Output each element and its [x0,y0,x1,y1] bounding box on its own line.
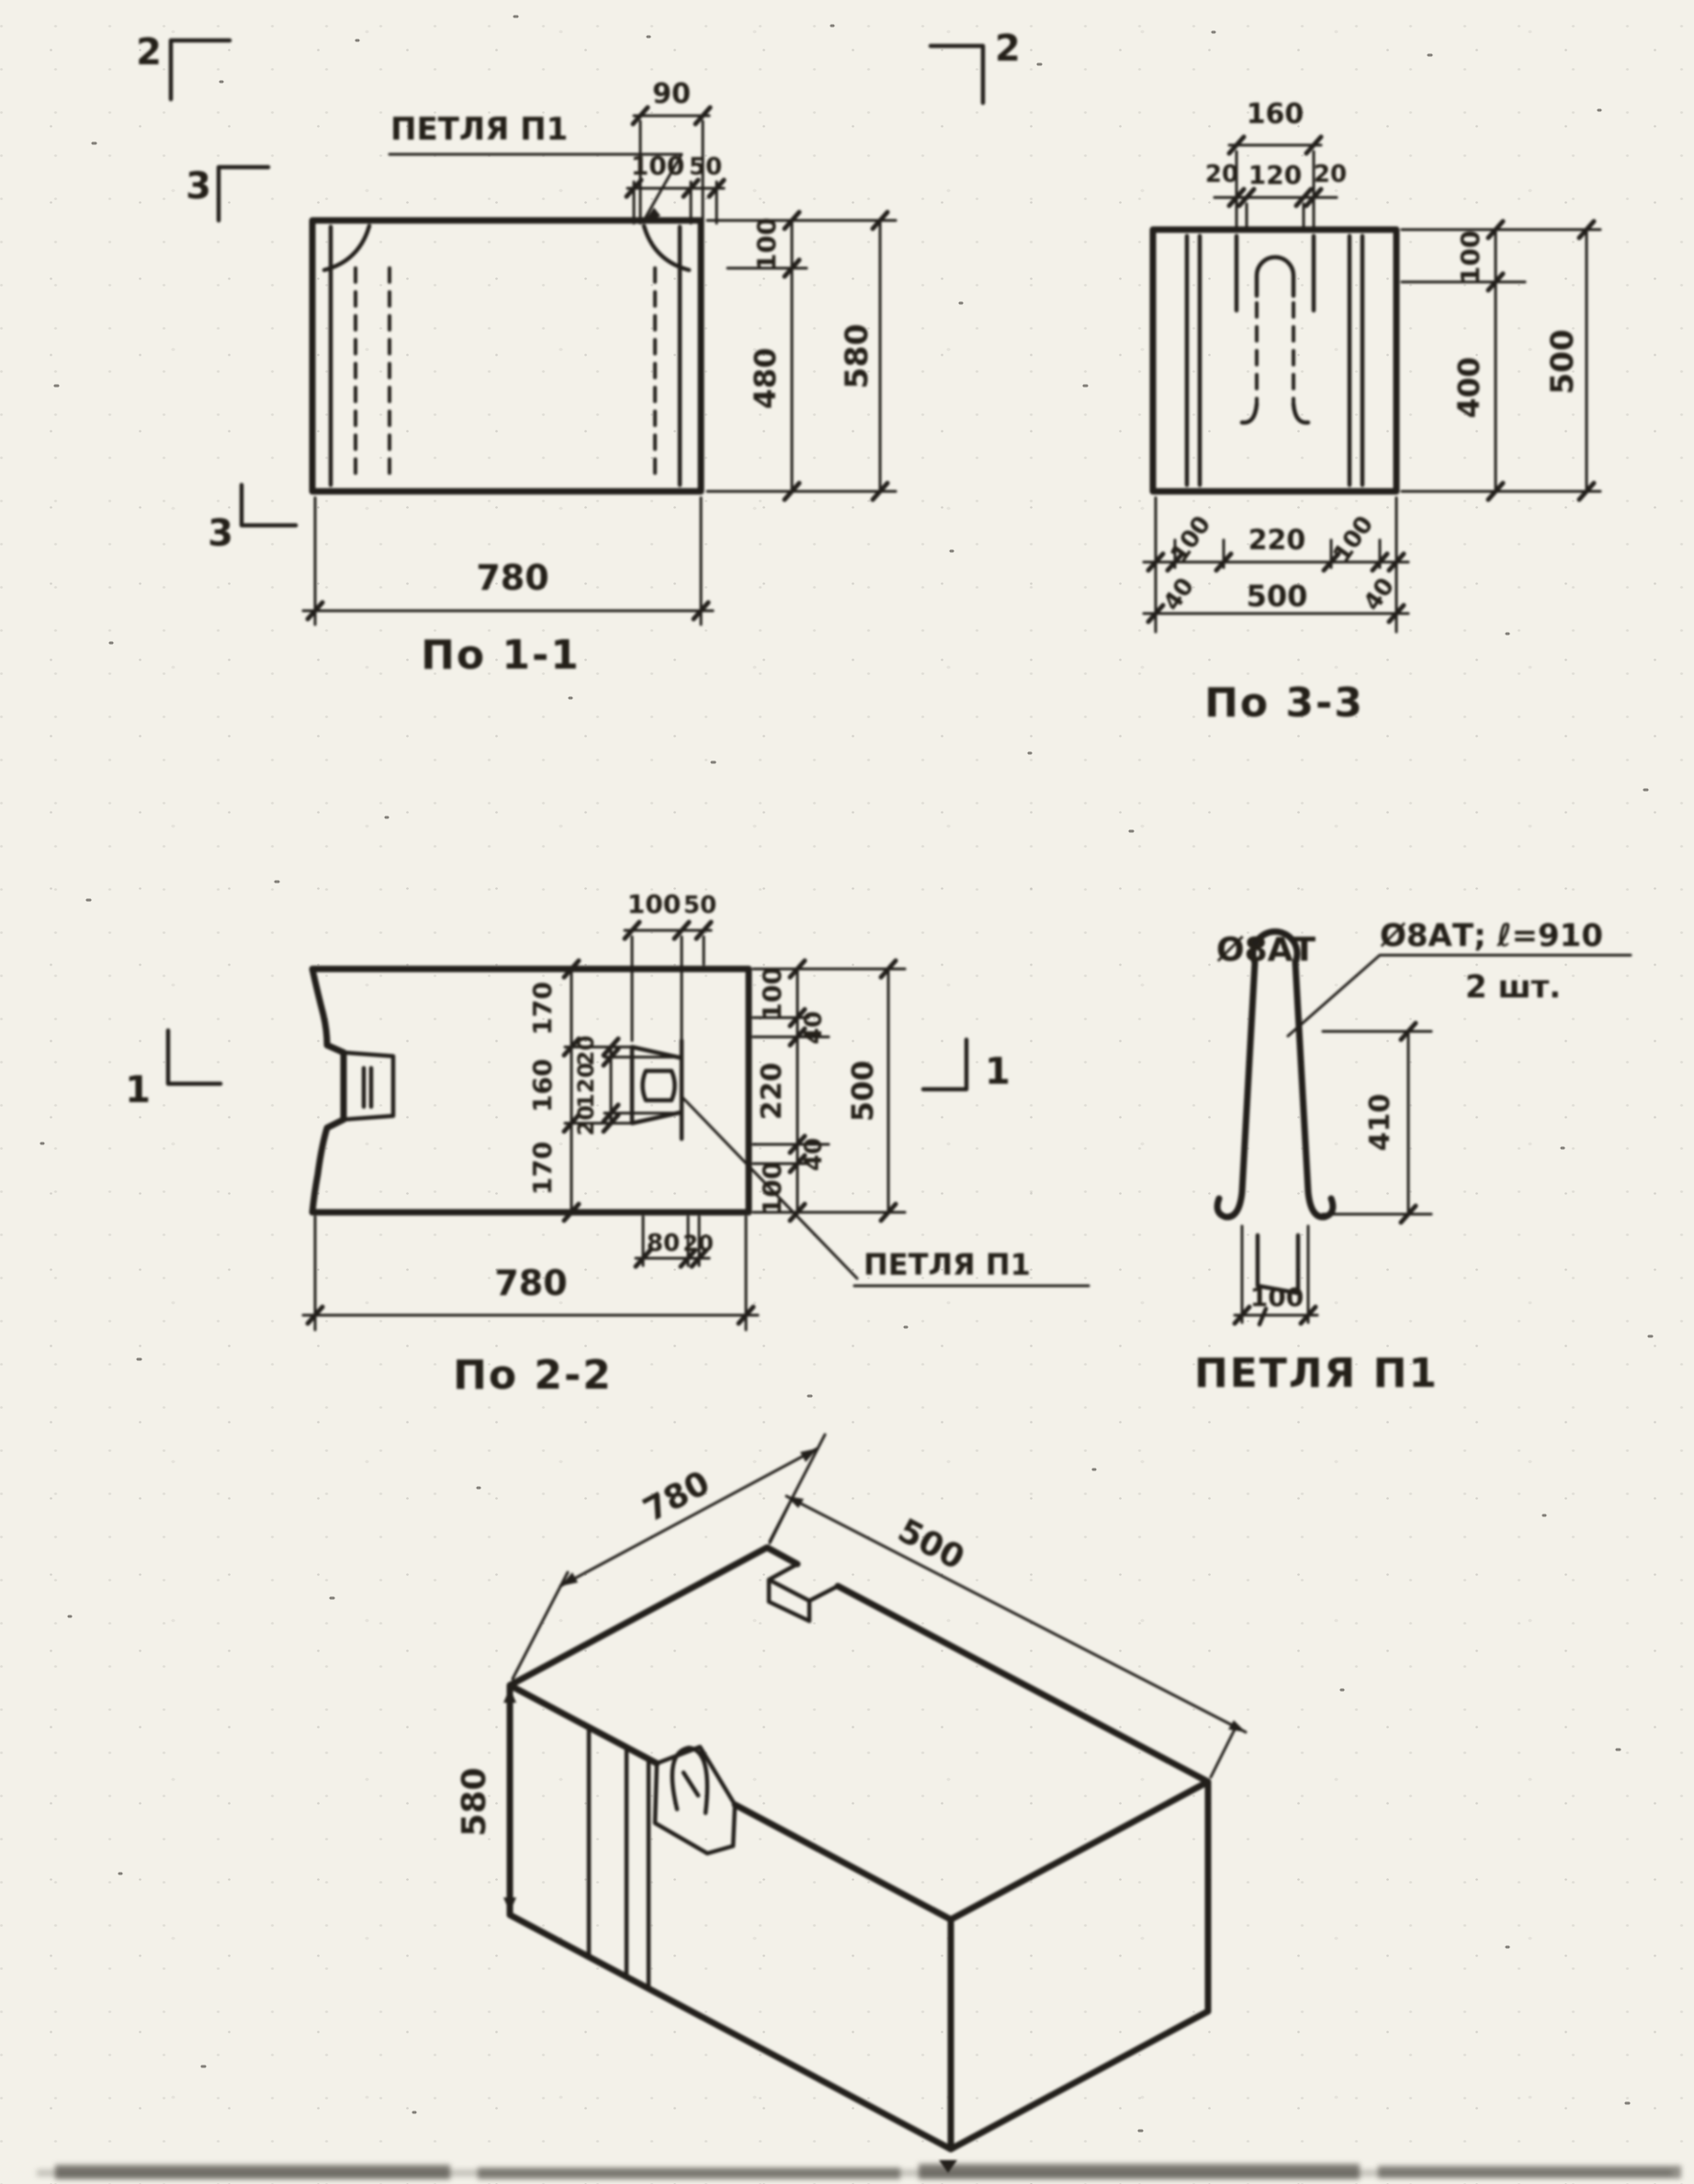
dim-780-2-2: 780 [494,1263,567,1303]
iso-dim-arrowheads [503,1448,1246,1912]
block-outline-3-3 [1153,230,1396,491]
dim-170-a: 170 [527,982,558,1035]
dim-20-bot: 20 [683,1231,713,1256]
section-mark-3-top: 3 [186,165,211,208]
dim-480: 480 [748,348,783,410]
section-mark-3-top-bracket [219,167,268,220]
iso-front-recess [655,1747,735,1853]
section-mark-1-left: 1 [125,1069,151,1111]
iso-dim-500: 500 [892,1512,971,1577]
bottom-smudge-strip [37,2164,1681,2179]
loop-wire [1217,931,1333,1217]
dim-ticks-3-3 [1148,137,1594,622]
smudge-3 [919,2164,1360,2179]
dim-ticks-1-1 [308,107,887,619]
groove-lines-1-1 [324,226,689,485]
smudge-2 [478,2167,900,2179]
iso-dim-580: 580 [456,1767,493,1836]
loop-detail-view: Ø8АТ Ø8АТ; ℓ=910 2 шт. 410 100 ПЕТЛЯ П1 [1194,918,1631,1397]
dim-lines-1-1 [303,116,896,625]
section-mark-2-right: 2 [995,28,1021,70]
loop-wire-3-3 [1242,257,1308,422]
loop-note-leader [1288,955,1631,1036]
dim-500-bottom: 500 [1247,579,1308,614]
dim-20-left: 20 [1205,161,1238,188]
dim-120: 120 [1248,160,1302,190]
dim-50-top: 50 [689,153,722,181]
loop-dim-ticks [1235,1023,1416,1323]
dim-100-top-2-2: 100 [627,889,681,919]
dim-400: 400 [1451,357,1486,419]
blueprint-scan-page: ПЕТЛЯ П1 90 100 50 100 480 580 780 По 1-… [0,0,1694,2184]
dim-40-right: 40 [1359,573,1400,616]
section-mark-3-bottom: 3 [208,512,233,555]
dim-lines-3-3 [1144,145,1600,632]
dim-100-loop: 100 [1250,1282,1304,1312]
dim-100-right-a: 100 [757,967,787,1020]
dim-ticks-2-2 [308,922,896,1323]
dim-100-top: 100 [631,151,684,181]
section-1-1-view: ПЕТЛЯ П1 90 100 50 100 480 580 780 По 1-… [136,28,1021,679]
isometric-view: 780 500 580 [456,1435,1246,2173]
dim-780-bottom: 780 [476,557,548,598]
section-2-2-view: 100 50 170 160 170 20 120 20 100 40 220 … [125,889,1089,1399]
iso-front-grooves [589,1728,649,1987]
iso-notch [769,1564,838,1621]
dim-580: 580 [839,324,875,389]
dim-100-right-b: 100 [757,1162,787,1215]
section-mark-2-right-bracket [931,46,983,103]
dim-40-left: 40 [1158,573,1200,616]
dim-20-right: 20 [1314,161,1347,188]
center-recess-2-2 [632,1041,682,1139]
section-mark-3-bottom-bracket [242,485,296,525]
loop-label-1-1: ПЕТЛЯ П1 [390,111,568,148]
drawing-canvas: ПЕТЛЯ П1 90 100 50 100 480 580 780 По 1-… [0,0,1694,2184]
loop-apex-label: Ø8АТ [1216,931,1316,969]
section-mark-1-right: 1 [985,1051,1011,1093]
dim-20-inner-a: 20 [573,1035,599,1065]
smudge-4 [1378,2166,1681,2178]
block-outline-1-1 [312,220,701,491]
hidden-lines-1-1 [356,268,655,476]
iso-dim-780: 780 [638,1464,717,1529]
dim-220: 220 [1248,524,1306,557]
loop-legs-hidden-3-3 [1257,303,1293,404]
section-mark-2-left-bracket [171,40,230,99]
dim-20-inner-b: 20 [573,1105,599,1135]
dim-500-2-2: 500 [845,1061,880,1122]
dim-50-top-2-2: 50 [683,892,717,919]
loop-dim-lines [1235,1031,1431,1323]
dim-410: 410 [1364,1094,1396,1152]
caption-petlya-p1: ПЕТЛЯ П1 [1194,1350,1439,1397]
dim-120-inner: 120 [573,1063,599,1109]
dim-100-right: 100 [751,218,782,271]
loop-label-2-2: ПЕТЛЯ П1 [864,1247,1031,1282]
section-mark-1-left-bracket [168,1030,220,1084]
caption-po-1-1: По 1-1 [421,632,581,679]
dim-160: 160 [527,1059,558,1112]
section-mark-2-left: 2 [136,31,162,73]
loop-note-line1: Ø8АТ; ℓ=910 [1380,918,1603,954]
loop-note-line2: 2 шт. [1465,969,1561,1006]
section-3-3-view: 160 20 120 20 100 400 500 100 220 100 40… [1144,98,1600,726]
dim-220-right: 220 [756,1063,788,1120]
dim-160: 160 [1247,98,1304,130]
edge-recess-2-2 [344,1053,393,1120]
caption-po-3-3: По 3-3 [1204,680,1364,726]
groove-lines-3-3 [1187,236,1362,485]
section-mark-1-right-bracket [923,1040,966,1089]
dim-40-right-b: 40 [800,1138,828,1171]
caption-po-2-2: По 2-2 [453,1352,613,1399]
dim-80-bot: 80 [647,1230,680,1257]
dim-100-right-3-3: 100 [1455,231,1485,284]
dim-500-right: 500 [1544,330,1581,395]
smudge-1 [55,2165,450,2179]
dim-90: 90 [652,78,691,110]
dim-100-bot-left: 100 [1166,512,1217,569]
iso-block-edges [510,1548,1208,2149]
dim-40-right-a: 40 [800,1011,828,1044]
dim-170-b: 170 [527,1142,558,1195]
